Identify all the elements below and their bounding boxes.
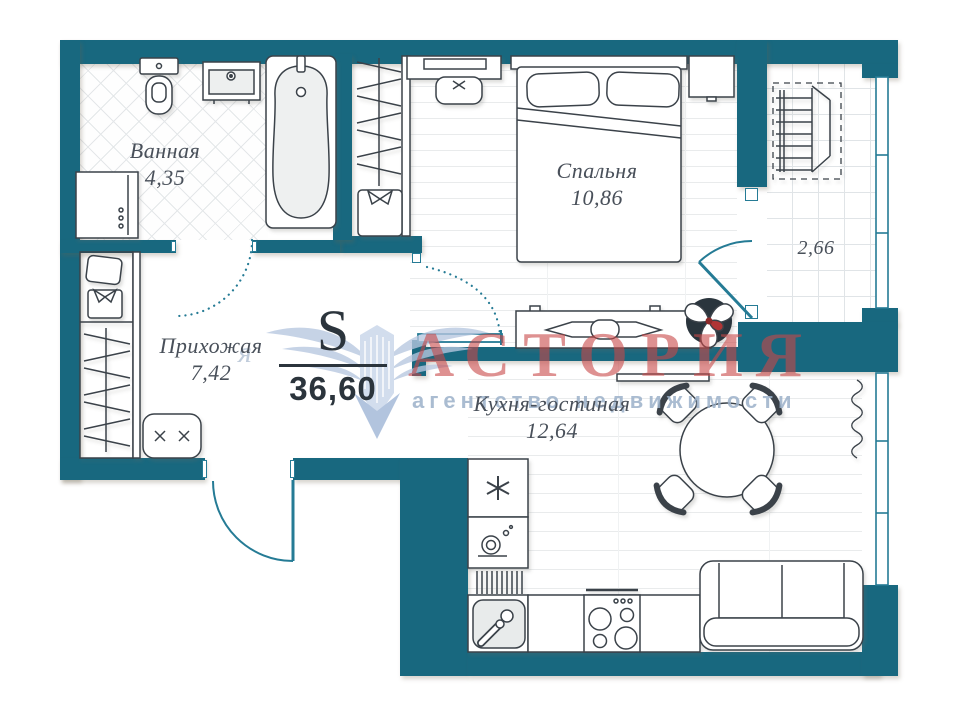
ottoman-icon [143, 414, 201, 458]
room-area: 7,42 [131, 359, 291, 386]
nightstand-icon [689, 56, 734, 101]
bathroom-door-swing [176, 240, 252, 316]
room-name: Кухня-гостиная [432, 390, 672, 417]
bathtub-icon [266, 56, 336, 228]
balcony-window [876, 77, 888, 308]
floor-plan-canvas: АСТОРИЯ агентство недвижимости я Ванная … [0, 0, 967, 712]
drying-rack-icon [773, 83, 841, 179]
room-area: 2,66 [776, 235, 856, 262]
room-area: 12,64 [432, 417, 672, 444]
entrance-door [213, 480, 293, 561]
radiator-icon [852, 380, 863, 458]
sofa-icon [700, 561, 863, 650]
stove-icon [584, 590, 640, 652]
watermark-title: АСТОРИЯ [408, 318, 815, 392]
total-area-divider [279, 364, 387, 367]
room-label-balcony: 2,66 [776, 235, 856, 262]
bathroom-sink-icon [203, 62, 260, 104]
total-area-symbol: S [273, 300, 393, 362]
kitchen-cabinet-icon [477, 571, 522, 594]
room-label-bathroom: Ванная 4,35 [95, 137, 235, 191]
fridge-icon [468, 459, 528, 517]
room-label-bedroom: Спальня 10,86 [517, 157, 677, 211]
kitchen-window [876, 373, 888, 585]
desk-icon [407, 56, 501, 79]
room-area: 10,86 [517, 184, 677, 211]
room-name: Ванная [95, 137, 235, 164]
room-label-hallway: Прихожая 7,42 [131, 332, 291, 386]
room-label-kitchen-living: Кухня-гостиная 12,64 [432, 390, 672, 444]
kitchen-sink-icon [473, 600, 525, 648]
total-area-value: 36,60 [273, 370, 393, 408]
dishwasher-icon [468, 517, 528, 568]
bedroom-wardrobe-icon [357, 56, 410, 236]
room-name: Прихожая [131, 332, 291, 359]
room-name: Спальня [517, 157, 677, 184]
desk-chair-icon [436, 77, 482, 104]
room-area: 4,35 [95, 164, 235, 191]
total-area-label: S 36,60 [273, 300, 393, 408]
toilet-icon [140, 58, 178, 114]
